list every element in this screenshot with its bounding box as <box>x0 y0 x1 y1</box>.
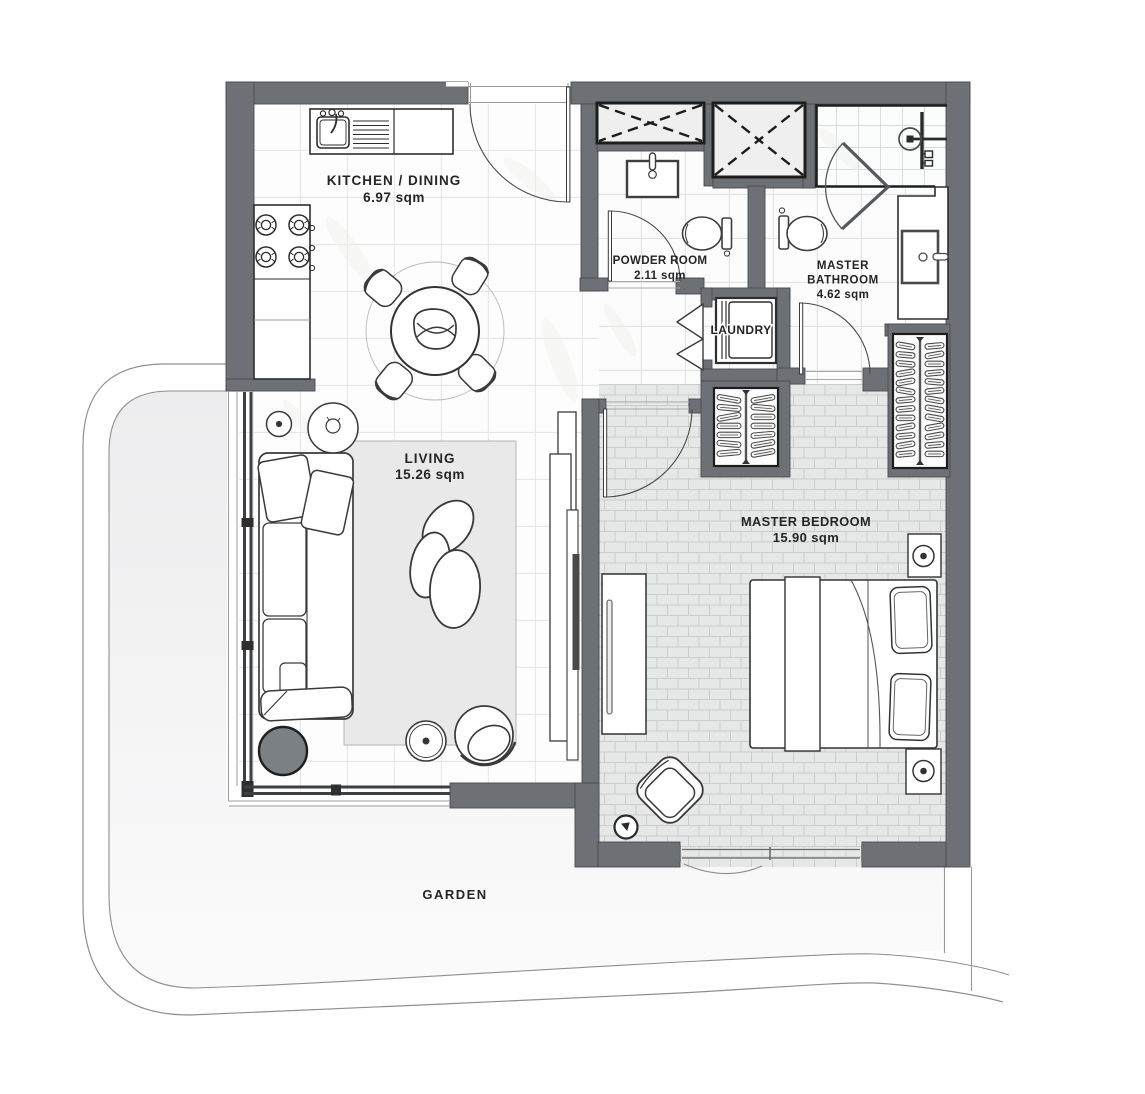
svg-text:MASTER BEDROOM: MASTER BEDROOM <box>741 514 871 529</box>
svg-text:MASTER: MASTER <box>817 260 869 272</box>
svg-text:LAUNDRY: LAUNDRY <box>710 323 771 337</box>
svg-text:POWDER ROOM: POWDER ROOM <box>613 254 708 267</box>
svg-text:KITCHEN / DINING: KITCHEN / DINING <box>327 173 462 188</box>
svg-text:4.62 sqm: 4.62 sqm <box>817 289 869 301</box>
svg-text:2.11 sqm: 2.11 sqm <box>634 270 686 282</box>
svg-text:BATHROOM: BATHROOM <box>807 275 879 287</box>
svg-text:GARDEN: GARDEN <box>422 887 487 902</box>
svg-text:6.97 sqm: 6.97 sqm <box>363 190 425 205</box>
svg-text:15.90 sqm: 15.90 sqm <box>773 530 839 545</box>
svg-text:LIVING: LIVING <box>404 451 455 466</box>
svg-text:15.26 sqm: 15.26 sqm <box>395 467 465 482</box>
